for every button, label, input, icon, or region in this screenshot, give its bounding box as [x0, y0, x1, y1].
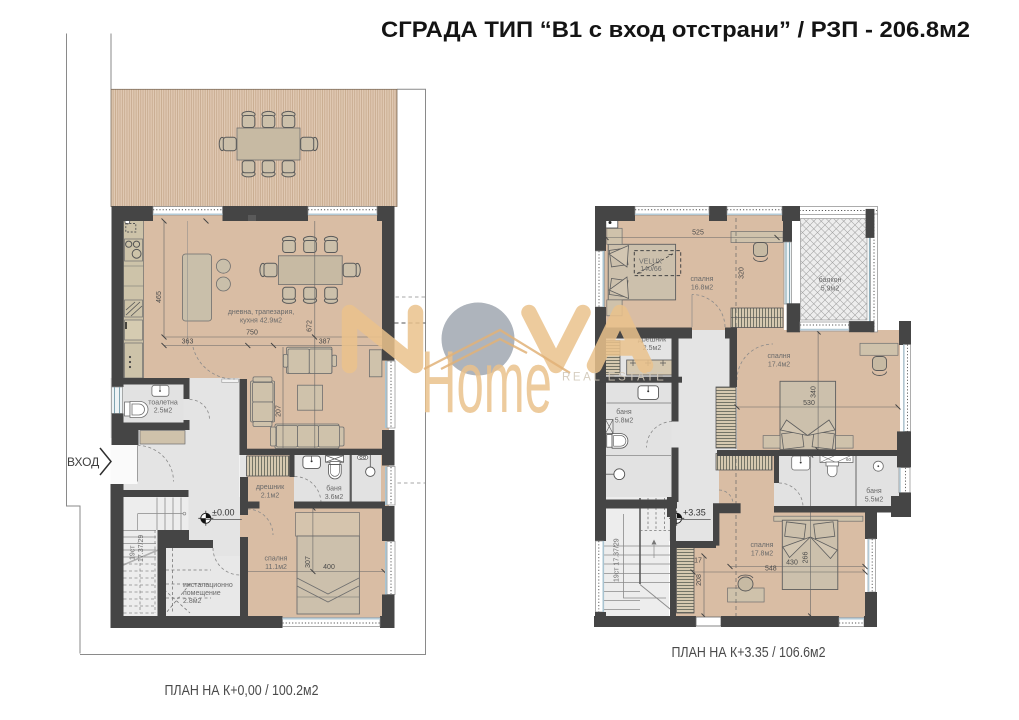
svg-text:17.8м2: 17.8м2 [751, 551, 773, 558]
svg-text:17.4м2: 17.4м2 [768, 362, 790, 369]
svg-text:баня: баня [866, 487, 882, 495]
svg-text:кухня 42.9м2: кухня 42.9м2 [240, 318, 282, 325]
svg-text:672: 672 [307, 320, 314, 332]
svg-text:387: 387 [319, 339, 331, 346]
svg-text:530: 530 [803, 400, 815, 407]
svg-text:340: 340 [810, 386, 817, 398]
svg-text:ПЛАН НА К+3.35 / 106.6м2: ПЛАН НА К+3.35 / 106.6м2 [672, 645, 826, 661]
svg-text:5,9м2: 5,9м2 [821, 286, 840, 293]
svg-text:19ст: 19ст [130, 545, 137, 560]
svg-text:140/66: 140/66 [640, 266, 662, 273]
svg-text:спалня: спалня [691, 276, 714, 283]
svg-text:инсталационно: инсталационно [183, 582, 233, 589]
svg-text:307: 307 [305, 556, 312, 568]
svg-text:спалня: спалня [265, 556, 288, 563]
svg-text:спалня: спалня [768, 353, 791, 360]
svg-text:208: 208 [696, 574, 703, 586]
svg-text:320: 320 [739, 267, 746, 279]
svg-text:525: 525 [692, 230, 704, 237]
svg-text:465: 465 [156, 291, 163, 303]
svg-text:REAL ESTATE: REAL ESTATE [562, 372, 666, 384]
svg-text:2.1м2: 2.1м2 [261, 493, 280, 500]
svg-text:СГРАДА ТИП “В1 с вход отстрани: СГРАДА ТИП “В1 с вход отстрани” / РЗП - … [381, 17, 970, 42]
svg-text:помещение: помещение [183, 590, 221, 597]
svg-text:207: 207 [276, 405, 283, 417]
svg-text:тоалетна: тоалетна [148, 400, 178, 407]
svg-text:430: 430 [786, 560, 798, 567]
svg-text:400: 400 [323, 564, 335, 571]
svg-text:дневна, трапезария,: дневна, трапезария, [228, 309, 294, 316]
svg-text:VELUX: VELUX [639, 259, 662, 266]
svg-text:+3.35: +3.35 [683, 508, 706, 518]
svg-text:60: 60 [846, 457, 852, 462]
svg-text:ВХОД: ВХОД [67, 455, 99, 469]
svg-text:548: 548 [765, 566, 777, 573]
svg-text:спалня: спалня [751, 542, 774, 549]
svg-text:363: 363 [182, 339, 194, 346]
svg-text:16.8м2: 16.8м2 [691, 285, 713, 292]
svg-text:5.5м2: 5.5м2 [865, 497, 884, 504]
svg-text:266: 266 [803, 552, 810, 564]
svg-text:19ст 17.37/29: 19ст 17.37/29 [614, 538, 621, 582]
svg-text:11.1м2: 11.1м2 [265, 564, 287, 571]
svg-text:баня: баня [326, 485, 342, 493]
svg-text:750: 750 [246, 330, 258, 337]
svg-text:балкон: балкон [819, 276, 842, 284]
svg-text:баня: баня [616, 408, 632, 416]
svg-text:3.6м2: 3.6м2 [325, 494, 344, 501]
svg-text:ПЛАН НА К+0,00 / 100.2м2: ПЛАН НА К+0,00 / 100.2м2 [165, 683, 319, 699]
svg-text:2.8м2: 2.8м2 [183, 598, 202, 605]
svg-text:17.37/29: 17.37/29 [138, 535, 145, 562]
svg-text:2.5м2: 2.5м2 [154, 408, 173, 415]
svg-text:5.8м2: 5.8м2 [615, 418, 634, 425]
svg-text:17: 17 [694, 558, 702, 565]
svg-text:±0.00: ±0.00 [212, 508, 234, 518]
svg-text:дрешник: дрешник [256, 484, 285, 491]
